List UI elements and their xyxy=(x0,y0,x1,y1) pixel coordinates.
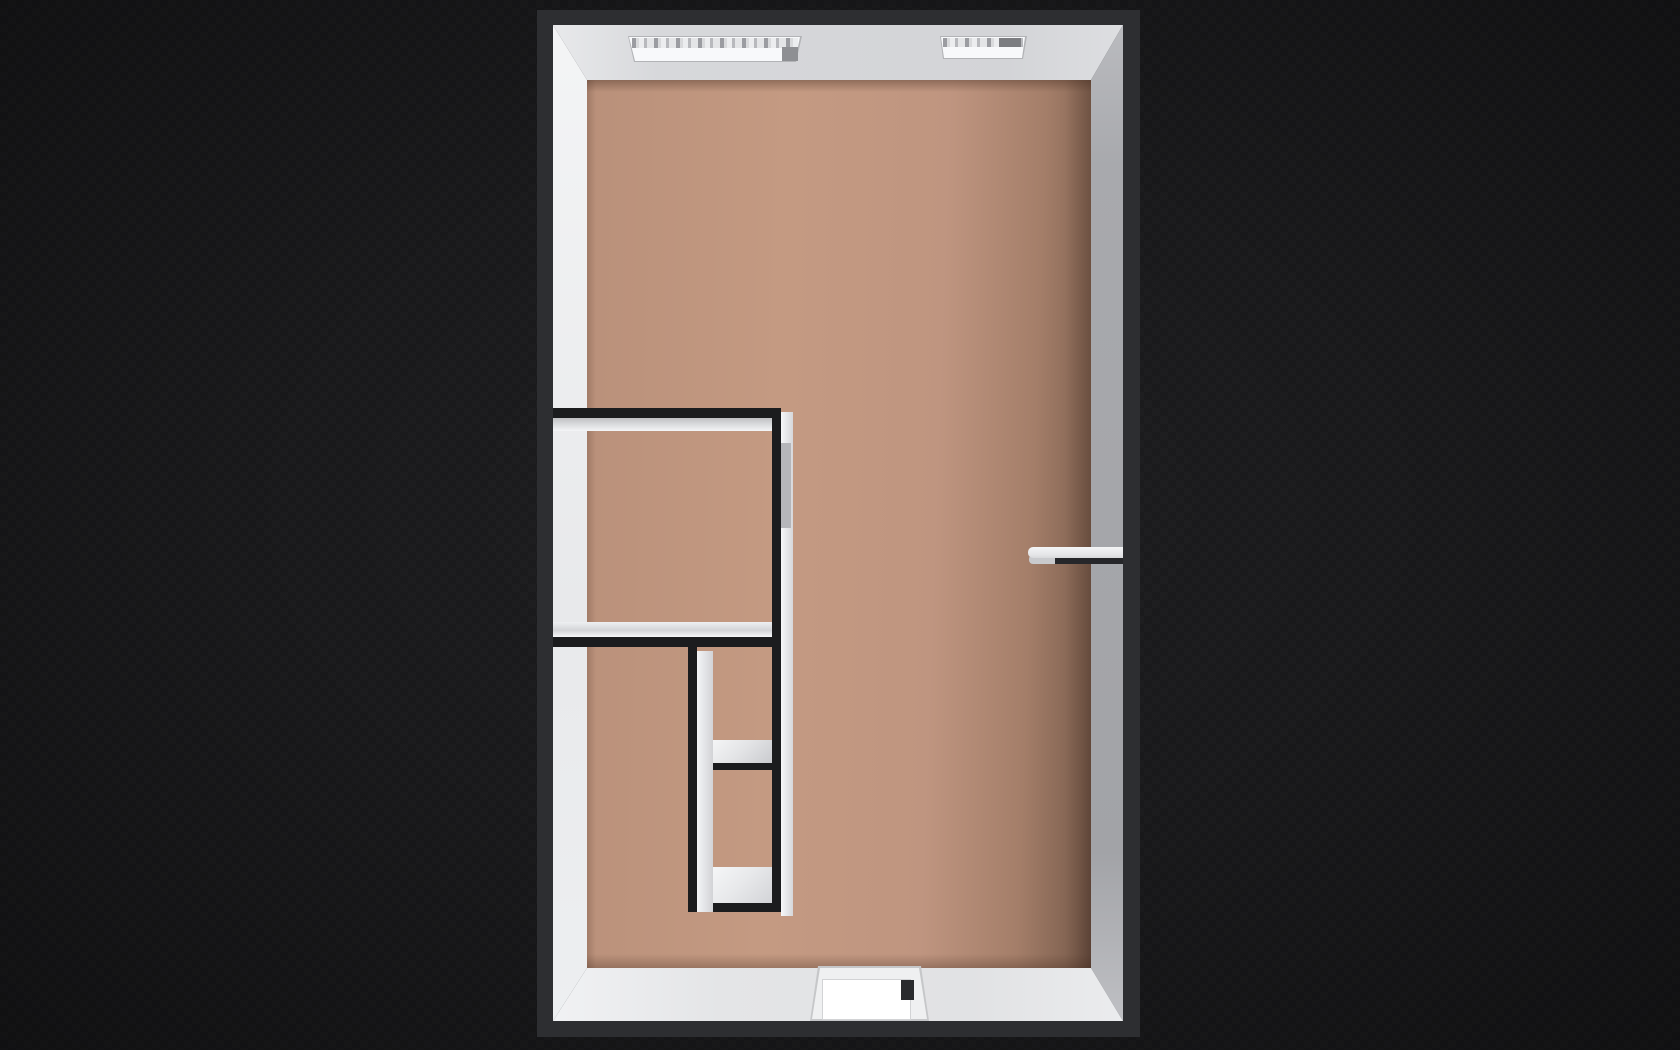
wall-c-face xyxy=(553,622,783,637)
closet-door-panel xyxy=(781,443,791,528)
viewer-canvas[interactable] xyxy=(0,0,1680,1050)
door-leaf-top xyxy=(1028,547,1123,558)
window-shade-left xyxy=(782,47,798,61)
floor-edge-shadow xyxy=(587,80,1091,968)
window-shade-right xyxy=(999,38,1021,47)
wall-f-top xyxy=(688,647,697,912)
wall-a-top xyxy=(553,408,777,418)
entry-door-panel xyxy=(822,979,911,1020)
entry-door-handle xyxy=(901,980,914,1000)
wall-a-face xyxy=(553,418,777,431)
floorplan[interactable] xyxy=(537,10,1140,1037)
wall-b-top xyxy=(772,408,781,912)
wall-c-top xyxy=(553,637,783,647)
window-glass-left xyxy=(632,38,798,48)
wall-f-face xyxy=(697,651,713,912)
